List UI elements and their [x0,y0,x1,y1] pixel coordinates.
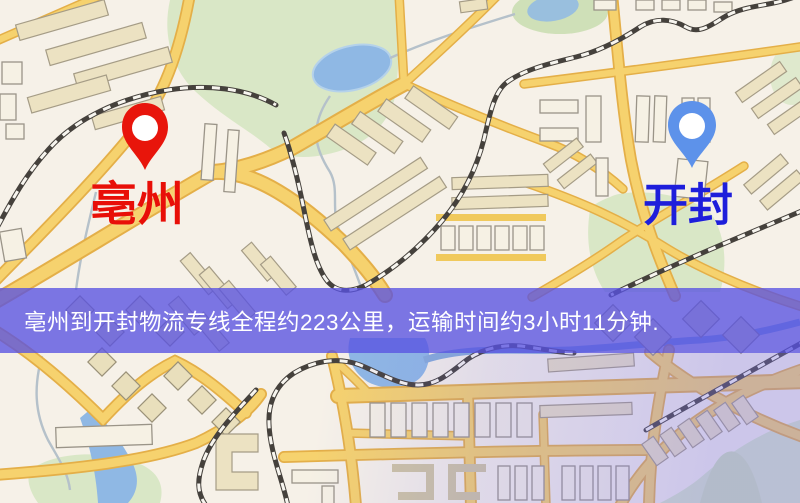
origin-pin-hole [132,115,158,141]
route-banner: 亳州到开封物流专线全程约223公里，运输时间约3小时11分钟. [0,288,800,353]
destination-pin-hole [679,113,705,139]
origin-label: 亳州 [90,166,184,235]
destination-pin-icon [668,101,716,168]
map-container: 亳州 开封 亳州到开封物流专线全程约223公里，运输时间约3小时11分钟. [0,0,800,503]
origin-pin-icon [122,103,168,170]
route-banner-text: 亳州到开封物流专线全程约223公里，运输时间约3小时11分钟. [24,305,659,337]
map-canvas [0,0,800,503]
destination-label: 开封 [643,169,733,234]
